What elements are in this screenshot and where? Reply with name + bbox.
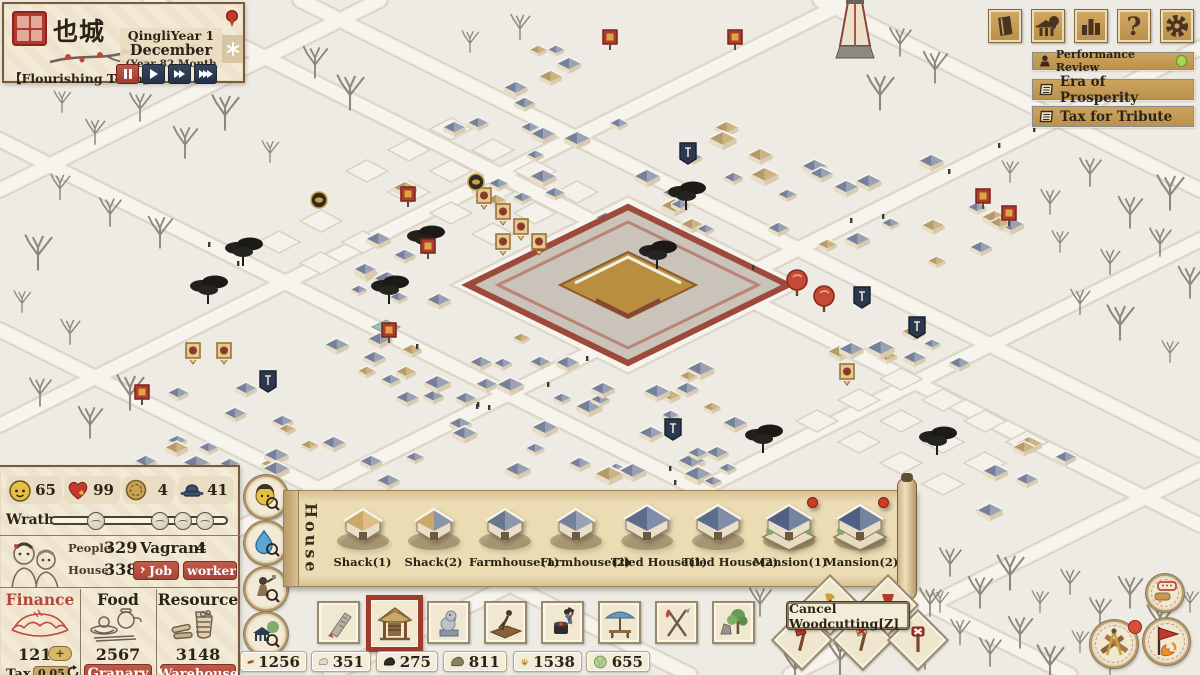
stone-icon [318, 655, 329, 668]
play-button[interactable] [142, 64, 165, 84]
stone-value: 351 [333, 653, 364, 671]
income-plus-badge[interactable]: + [48, 646, 72, 661]
warehouse-button[interactable]: Warehouse [160, 664, 236, 675]
build-item-tiled-house-2[interactable]: Tiled House(2) [682, 499, 753, 581]
location-pin-icon[interactable] [225, 10, 239, 28]
official-stat: 41 [178, 476, 234, 504]
wrath-track [50, 516, 228, 525]
question-mark-icon: ? [1127, 12, 1142, 41]
toolbar-category-tools[interactable] [655, 601, 698, 644]
quest-label: Era of Prosperity [1060, 74, 1187, 106]
coal-value: 275 [400, 653, 431, 671]
coal-icon [383, 655, 396, 668]
map-banner[interactable] [680, 143, 696, 164]
build-item-label: Farmhouse(2) [540, 555, 611, 569]
month-label: December [120, 43, 222, 59]
vegetable-resource: 655 [586, 651, 650, 672]
finance-art [8, 608, 72, 642]
build-item-label: Shack(2) [398, 555, 469, 569]
stone-lion-icon [433, 607, 465, 639]
action-tooltip: Cancel Woodcutting[Z] [787, 602, 909, 629]
messages-button[interactable] [1146, 574, 1184, 612]
quest-label: Tax for Tribute [1060, 109, 1172, 125]
wrath-label: Wrath [6, 512, 54, 528]
wood-resource: 1256 [240, 651, 307, 672]
house-label: House [68, 563, 109, 577]
happiness-icon [8, 478, 32, 502]
food-art [88, 608, 148, 642]
citizens-art [4, 538, 66, 588]
town-seal-icon [12, 11, 47, 46]
vegetable-value: 655 [612, 653, 643, 671]
warehouse-label: Warehouse [158, 667, 238, 675]
build-item-farmhouse-2[interactable]: Farmhouse(2) [540, 499, 611, 581]
umbrella-table-icon [603, 606, 637, 640]
granary-button[interactable]: Granary [84, 664, 152, 675]
citizen-view-toggle[interactable] [244, 475, 288, 519]
building-icon [332, 499, 394, 555]
gear-icon [1164, 13, 1190, 39]
happiness-stat: 65 [6, 476, 62, 504]
people-value: 329 [104, 538, 137, 557]
toolbar-category-nature[interactable] [712, 601, 755, 644]
job-label: Job [149, 563, 172, 578]
scroll-left-roller [284, 491, 299, 586]
building-icon [403, 499, 465, 555]
map-banner[interactable] [854, 287, 870, 308]
map-banner[interactable] [665, 419, 681, 440]
build-item-label: Tiled House(2) [682, 555, 753, 569]
forge-icon [546, 606, 580, 640]
map-banner[interactable] [260, 371, 276, 392]
building-icon [474, 499, 536, 555]
notification-badge [1128, 620, 1142, 634]
locked-badge [878, 497, 889, 508]
happiness-value: 65 [35, 481, 56, 499]
official-value: 41 [207, 481, 228, 499]
toolbar-category-house[interactable] [366, 595, 423, 652]
house-icon [375, 604, 415, 644]
resource-title: Resource [156, 590, 240, 609]
coin-value: 4 [158, 481, 168, 499]
worker-label: worker [187, 563, 236, 578]
wood-value: 1256 [258, 653, 300, 671]
locked-badge [807, 497, 818, 508]
map-shop-sign-round[interactable] [311, 192, 327, 208]
build-item-shack-1[interactable]: Shack(1) [327, 499, 398, 581]
water-view-toggle[interactable] [244, 521, 288, 565]
vagrant-value: 4 [196, 539, 206, 557]
build-item-farmhouse-1[interactable]: Farmhouse(1) [469, 499, 540, 581]
clay-resource: 811 [443, 651, 507, 672]
map-shop-sign-round[interactable] [468, 174, 484, 190]
quest-label: Performance Review [1056, 48, 1171, 74]
straw-icon [520, 655, 529, 669]
scroll-right-roller[interactable] [897, 478, 917, 600]
toolbar-category-road[interactable] [317, 601, 360, 644]
town-hall-button[interactable] [1031, 9, 1065, 43]
build-menu-scroll: House Shack(1) Shack(2) Farmhouse(1) [283, 490, 916, 587]
food-title: Food [80, 590, 156, 609]
status-dot [1176, 55, 1187, 67]
quest-performance-review[interactable]: Performance Review [1032, 52, 1194, 70]
granary-label: Granary [88, 666, 149, 675]
clay-value: 811 [469, 653, 500, 671]
game-viewport: 也城 QingliYear 1 December (Year 82 Month … [0, 0, 1200, 675]
resource-art [166, 608, 226, 642]
build-item-mansion-1[interactable]: Mansion(1) [753, 499, 824, 581]
scroll-icon [1039, 83, 1055, 96]
crossed-weapons-icon [660, 606, 694, 640]
clay-icon [450, 655, 465, 668]
build-item-mansion-2[interactable]: Mansion(2) [824, 499, 895, 581]
tax-refresh-icon[interactable] [66, 665, 80, 675]
vegetable-icon [593, 655, 608, 669]
town-info-panel: 也城 QingliYear 1 December (Year 82 Month … [2, 2, 245, 83]
health-stat: 99 [64, 476, 120, 504]
ledger-icon [993, 14, 1017, 38]
straw-resource: 1538 [513, 651, 582, 672]
build-item-label: Farmhouse(1) [469, 555, 540, 569]
events-button[interactable] [1143, 618, 1190, 665]
pause-button[interactable] [116, 64, 139, 84]
build-item-tiled-house-1[interactable]: Tiled House(1) [611, 499, 682, 581]
wrath-fist-marker [174, 512, 192, 530]
tax-rate-badge[interactable]: 0.05 [33, 666, 70, 675]
build-category-label: House [299, 491, 323, 586]
snowflake-icon [226, 42, 240, 56]
build-item-label: Mansion(1) [753, 555, 824, 569]
date-block: QingliYear 1 December (Year 82 Month [120, 28, 222, 68]
toolbar-category-decoration[interactable] [427, 601, 470, 644]
wrath-fist-marker [151, 512, 169, 530]
building-icon [545, 499, 607, 555]
help-button[interactable]: ? [1117, 9, 1151, 43]
job-button[interactable]: Job [133, 561, 179, 580]
wrath-meter: Wrath [6, 509, 234, 531]
heart-icon [66, 478, 90, 502]
health-value: 99 [93, 481, 114, 499]
food-value: 2567 [80, 645, 156, 664]
building-view-toggle[interactable] [244, 612, 288, 656]
road-icon [323, 607, 355, 639]
wrath-fist-marker [87, 512, 105, 530]
straw-value: 1538 [533, 653, 575, 671]
town-hall-icon [1035, 13, 1061, 39]
finance-value: 121 [18, 645, 51, 664]
building-icon [616, 499, 678, 555]
build-item-label: Shack(1) [327, 555, 398, 569]
official-hat-icon [180, 478, 204, 502]
era-label: QingliYear 1 [120, 29, 222, 43]
coin-icon [124, 478, 148, 502]
stone-resource: 351 [311, 651, 371, 672]
quest-tax-for-tribute[interactable]: Tax for Tribute [1032, 106, 1194, 127]
scroll-icon [1039, 110, 1055, 123]
tree-rock-icon [717, 606, 751, 640]
finance-title: Finance [0, 590, 80, 609]
toolbar-category-workshop[interactable] [541, 601, 584, 644]
wrath-fist-marker [196, 512, 214, 530]
hammer-icon [140, 565, 146, 576]
map-banner[interactable] [909, 317, 925, 338]
fastest-forward-button[interactable] [194, 64, 217, 84]
resource-value: 3148 [156, 645, 240, 664]
chat-bubbles-icon [1152, 580, 1178, 606]
worker-view-toggle[interactable] [244, 567, 288, 611]
season-winter-tile [222, 35, 243, 63]
building-icon [758, 499, 820, 555]
coal-resource: 275 [376, 651, 438, 672]
official-icon [1039, 54, 1051, 68]
fast-forward-button[interactable] [168, 64, 191, 84]
worker-button[interactable]: worker [183, 561, 237, 580]
build-item-label: Mansion(2) [824, 555, 895, 569]
tax-label: Tax [6, 667, 31, 675]
quest-era-of-prosperity[interactable]: Era of Prosperity [1032, 79, 1194, 100]
bar-chart-icon [1080, 15, 1102, 37]
farming-icon [489, 606, 523, 640]
compass-ruler-icon [1097, 627, 1131, 661]
flag-fire-icon [1150, 625, 1184, 659]
settings-button[interactable] [1160, 9, 1194, 43]
coin-stat: 4 [122, 476, 174, 504]
build-item-label: Tiled House(1) [611, 555, 682, 569]
building-icon [687, 499, 749, 555]
toolbar-category-farming[interactable] [484, 601, 527, 644]
build-item-shack-2[interactable]: Shack(2) [398, 499, 469, 581]
shovel-cancel-icon [904, 626, 932, 654]
toolbar-category-commerce[interactable] [598, 601, 641, 644]
wood-icon [247, 655, 254, 669]
city-stats-panel: 65 99 4 41 Wrath [0, 465, 240, 675]
tooltip-text: Cancel Woodcutting[Z] [789, 601, 907, 631]
statistics-button[interactable] [1074, 9, 1108, 43]
building-icon [829, 499, 891, 555]
ledger-button[interactable] [988, 9, 1022, 43]
